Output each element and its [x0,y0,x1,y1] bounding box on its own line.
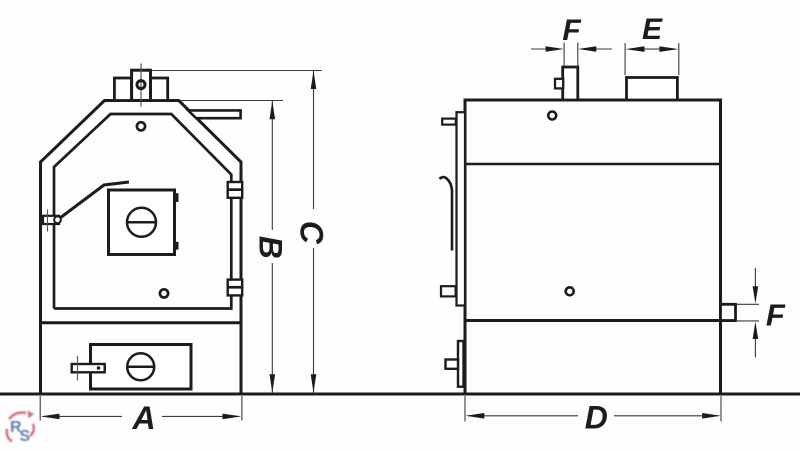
svg-text:B: B [252,236,288,259]
svg-text:F: F [562,14,581,47]
svg-text:F: F [766,298,786,333]
svg-text:D: D [585,399,608,435]
svg-text:E: E [642,13,663,46]
svg-text:S: S [20,428,31,445]
svg-text:C: C [294,221,330,245]
svg-text:A: A [131,400,155,436]
